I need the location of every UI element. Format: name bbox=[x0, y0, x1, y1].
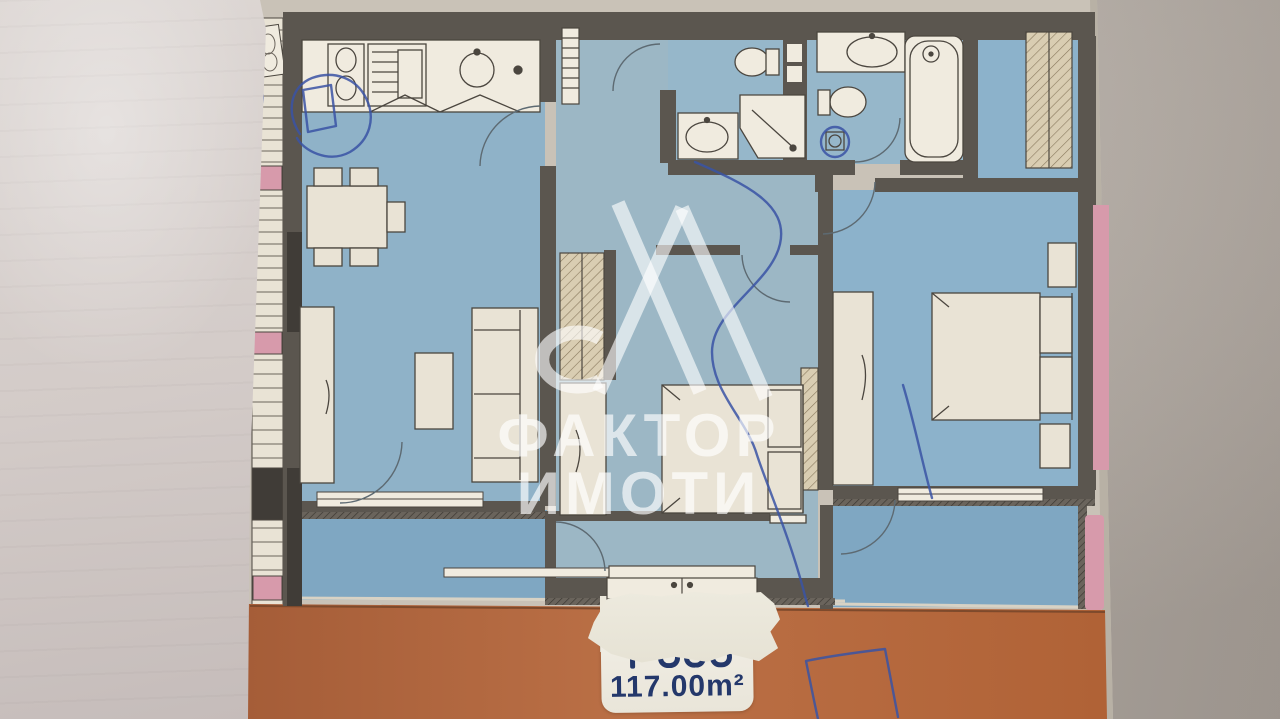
toilet-icon bbox=[735, 48, 779, 76]
chair bbox=[350, 248, 378, 266]
toilet-icon bbox=[818, 87, 866, 117]
chair bbox=[314, 248, 342, 266]
photo-of-floor-plan: 117.00m² ФАКТОР ИМОТИ bbox=[0, 0, 1280, 719]
balcony-left-floor bbox=[293, 510, 547, 600]
scratched-patch bbox=[588, 592, 780, 664]
bedroom2-furniture bbox=[560, 383, 806, 523]
drain-icon bbox=[514, 66, 522, 74]
sofa bbox=[472, 308, 538, 482]
washbasin-counter-icon bbox=[817, 32, 905, 72]
area-value: 117.00m² bbox=[610, 671, 745, 703]
bathtub-icon bbox=[905, 36, 963, 162]
pillow bbox=[768, 390, 801, 447]
balcony-right-floor bbox=[830, 505, 1082, 607]
pillow bbox=[1040, 297, 1072, 353]
nightstand bbox=[1048, 243, 1076, 287]
coffee-table bbox=[415, 353, 453, 429]
double-bed bbox=[662, 385, 803, 513]
dresser bbox=[833, 292, 873, 485]
nightstand bbox=[1040, 424, 1070, 468]
door-threshold bbox=[770, 515, 806, 523]
pillow bbox=[1040, 357, 1072, 413]
chair bbox=[387, 202, 405, 232]
white-paper-sheet bbox=[0, 0, 266, 719]
radiator-icon bbox=[562, 28, 579, 104]
washbasin-icon bbox=[678, 113, 738, 159]
paper-shine bbox=[0, 0, 266, 719]
wardrobe-cabinet bbox=[560, 383, 606, 515]
cabinet bbox=[300, 307, 334, 483]
chair bbox=[350, 168, 378, 186]
double-bed bbox=[932, 293, 1072, 420]
chair bbox=[314, 168, 342, 186]
